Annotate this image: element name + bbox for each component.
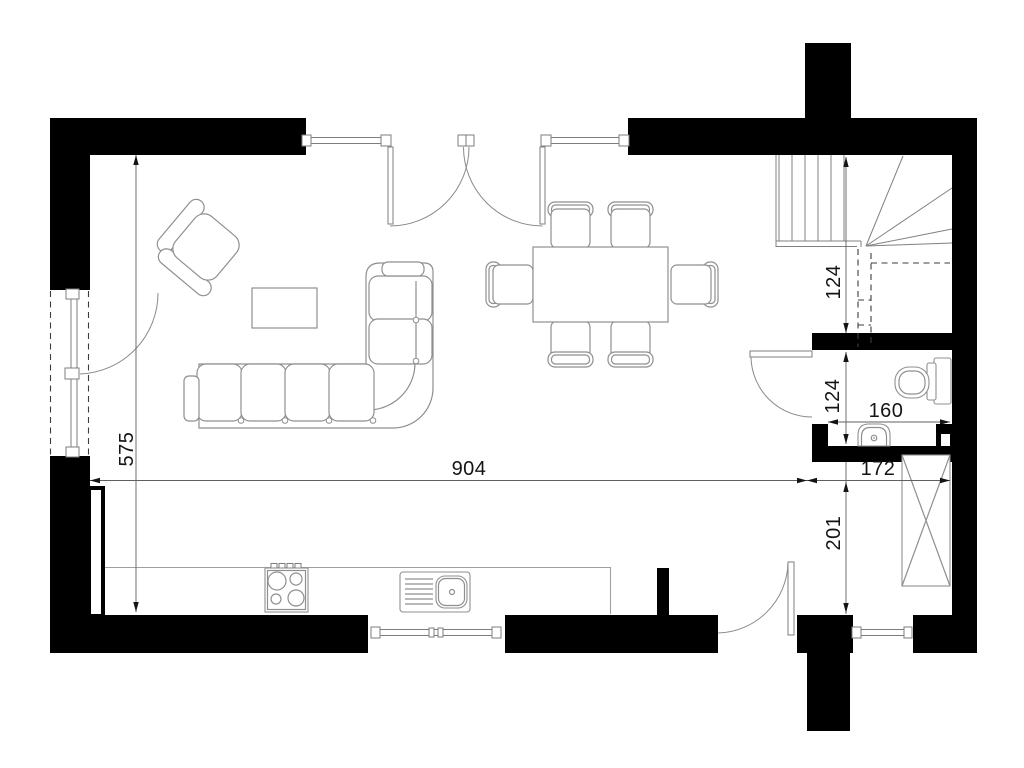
kitchen-sink-icon — [400, 572, 470, 612]
window-frame-cap — [904, 627, 912, 638]
counter-end-pillar — [657, 568, 669, 615]
dim-label-904: 904 — [452, 458, 487, 480]
wall-wc-left-stub — [812, 424, 828, 446]
dim-arrow — [797, 478, 807, 483]
armchair-icon — [148, 196, 251, 299]
dim-arrow — [843, 352, 848, 362]
kitchen-counter — [103, 568, 611, 615]
cooktop-icon — [265, 564, 308, 613]
dim-arrow — [940, 419, 950, 424]
window-frame-cap — [458, 135, 466, 146]
dim-label-160: 160 — [869, 400, 904, 422]
dim-arrow — [843, 603, 848, 613]
dining-table-icon — [533, 247, 668, 322]
dim-arrow — [807, 478, 817, 483]
window-frame-cap — [66, 447, 79, 457]
dim-label-124b: 124 — [822, 379, 844, 414]
dim-arrow — [843, 434, 848, 444]
dining-set — [486, 202, 718, 367]
dining-chair-icon — [671, 262, 718, 307]
dining-chair-icon — [548, 202, 593, 248]
dining-chair-icon — [608, 321, 653, 367]
window-icon — [542, 138, 628, 144]
window-icon — [373, 630, 500, 636]
door-leaf — [750, 351, 812, 357]
door-swing-icon — [464, 147, 543, 226]
stair-icon — [776, 155, 952, 347]
wc-duct-notch — [941, 434, 950, 446]
window-frame-cap — [541, 135, 551, 146]
wall-bottom-mid — [505, 615, 718, 653]
floor-plan-drawing: 904 172 160 575 124 124 201 — [0, 0, 1024, 768]
dim-arrow — [843, 323, 848, 333]
coffee-table-icon — [252, 288, 317, 328]
door-leaf — [388, 147, 393, 224]
window-frame-cap — [371, 627, 380, 638]
window-frame-cap — [65, 368, 79, 379]
dim-label-124a: 124 — [823, 265, 845, 300]
wall-top-right — [628, 118, 977, 155]
dining-chair-icon — [486, 262, 533, 307]
door-swing-icon — [718, 563, 788, 633]
dim-label-575: 575 — [116, 432, 138, 467]
dim-arrow — [133, 155, 138, 165]
window-icon — [306, 138, 390, 144]
living-room — [148, 196, 433, 428]
dim-arrow — [828, 419, 838, 424]
dim-arrow — [133, 602, 138, 612]
dim-arrow — [843, 482, 848, 492]
window-frame-cap — [466, 135, 474, 146]
door-leaf — [788, 562, 794, 635]
wall-entry-post — [797, 615, 853, 653]
window-frame-cap — [381, 135, 391, 146]
door-leaf — [540, 147, 545, 224]
windows — [51, 135, 913, 638]
sofa-icon — [184, 262, 433, 428]
washbasin-icon — [858, 424, 890, 446]
wardrobe-icon — [902, 455, 950, 586]
floor-plan-canvas: 904 172 160 575 124 124 201 — [0, 0, 1024, 768]
window-frame-cap — [66, 289, 79, 299]
dining-chair-icon — [608, 202, 653, 248]
toilet-icon — [895, 358, 951, 404]
kitchen — [89, 488, 669, 616]
wall-right — [952, 118, 977, 653]
dim-arrow — [90, 478, 100, 483]
window-mullion — [429, 628, 434, 637]
chimney-bottom — [807, 653, 850, 731]
dim-label-201: 201 — [823, 516, 845, 551]
window-frame-cap — [302, 135, 311, 146]
window-icon — [855, 630, 911, 636]
dining-chair-icon — [548, 321, 593, 367]
window-frame-cap — [852, 627, 861, 638]
chimney-top — [805, 43, 851, 121]
wall-bottom-left — [50, 615, 368, 653]
wall-wc-top — [812, 333, 952, 350]
door-swing-icon — [390, 147, 469, 226]
wall-left-upper — [50, 118, 90, 290]
window-frame-cap — [619, 135, 629, 146]
radiator-icon — [89, 488, 103, 616]
window-frame-cap — [492, 627, 501, 638]
window-mullion — [438, 628, 443, 637]
door-swing-icon — [751, 357, 812, 417]
door-swing-icon — [80, 293, 158, 374]
dim-label-172: 172 — [861, 458, 896, 480]
